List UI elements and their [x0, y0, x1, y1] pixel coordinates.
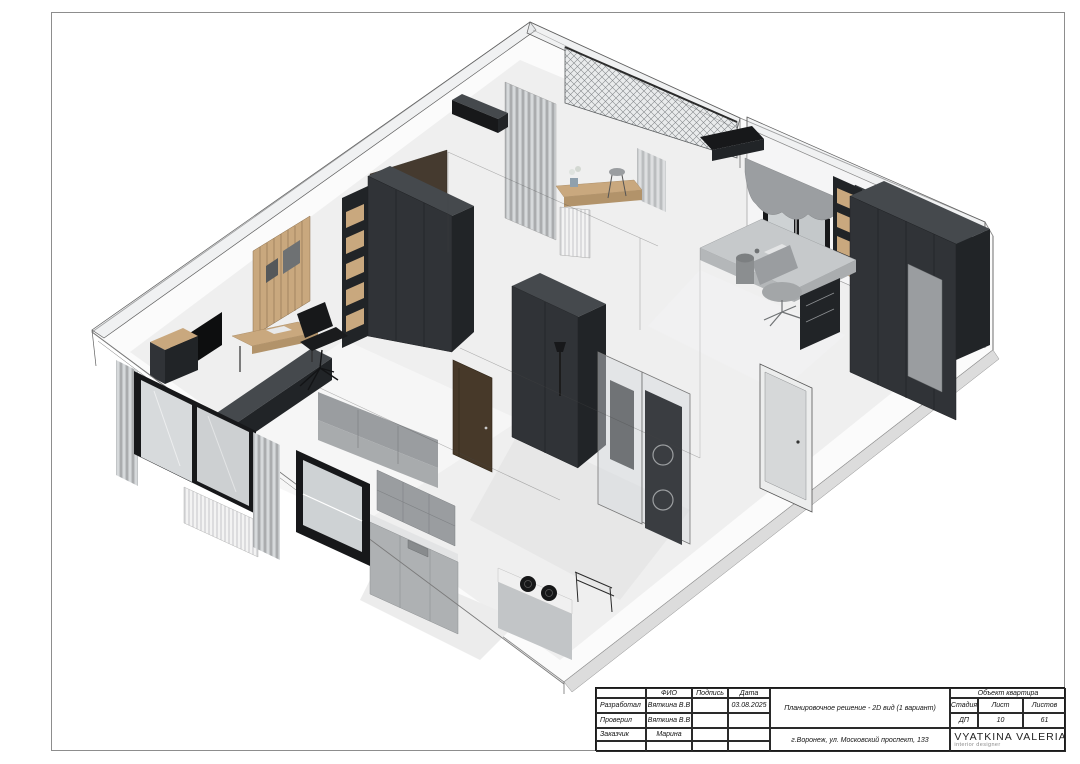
title-block: ФИО Подпись Дата Разработал Вяткина В.В …: [595, 687, 1065, 751]
signature-developed: [692, 698, 728, 713]
signature-checked: [692, 713, 728, 728]
sheet-title: Планировочное решение - 2D вид (1 вариан…: [770, 688, 950, 728]
object-label: Объект квартира: [950, 688, 1066, 698]
entry-door-white: [760, 364, 812, 512]
signature-client: [692, 728, 728, 741]
role-client: Заказчик: [596, 728, 646, 741]
name-developed: Вяткина В.В: [646, 698, 692, 713]
washer-dryer-stack: [645, 390, 682, 545]
date-developed: 03.08.2025: [728, 698, 770, 713]
people-header-empty: [596, 688, 646, 698]
date-checked: [728, 713, 770, 728]
wardrobe-door-panel: [908, 264, 942, 392]
sheets-header: Листов: [1023, 698, 1066, 713]
name-checked: Вяткина В.В: [646, 713, 692, 728]
people-header-fio: ФИО: [646, 688, 692, 698]
brand-tagline: interior designer: [954, 742, 1000, 748]
role-checked: Проверил: [596, 713, 646, 728]
sheet-header: Лист: [978, 698, 1023, 713]
sheets-total: 61: [1023, 713, 1066, 728]
stage-value: ДП: [950, 713, 978, 728]
desk-mug: [755, 249, 760, 254]
people-header-signature: Подпись: [692, 688, 728, 698]
interior-door-brown: [453, 360, 492, 472]
shower-column: [610, 380, 634, 470]
role-developed: Разработал: [596, 698, 646, 713]
stage-header: Стадия: [950, 698, 978, 713]
name-empty: [646, 741, 692, 752]
name-client: Марина: [646, 728, 692, 741]
project-address: г.Воронеж, ул. Московский проспект, 133: [770, 728, 950, 752]
drawing-sheet: ФИО Подпись Дата Разработал Вяткина В.В …: [0, 0, 1080, 764]
designer-logo: VYATKINA VALERIA interior designer: [950, 728, 1066, 752]
shelf-column-living: [342, 186, 368, 348]
people-header-date: Дата: [728, 688, 770, 698]
apartment-3d-axonometric-view: [0, 0, 1080, 764]
brand-name: VYATKINA VALERIA: [954, 732, 1066, 742]
hall-wardrobe: [512, 273, 606, 468]
radiator: [560, 207, 590, 258]
date-client: [728, 728, 770, 741]
date-empty: [728, 741, 770, 752]
loggia-curtain: [505, 82, 556, 240]
curtain-mid: [253, 432, 280, 560]
sheet-number: 10: [978, 713, 1023, 728]
signature-empty: [692, 741, 728, 752]
waste-bin: [736, 254, 754, 285]
role-empty: [596, 741, 646, 752]
